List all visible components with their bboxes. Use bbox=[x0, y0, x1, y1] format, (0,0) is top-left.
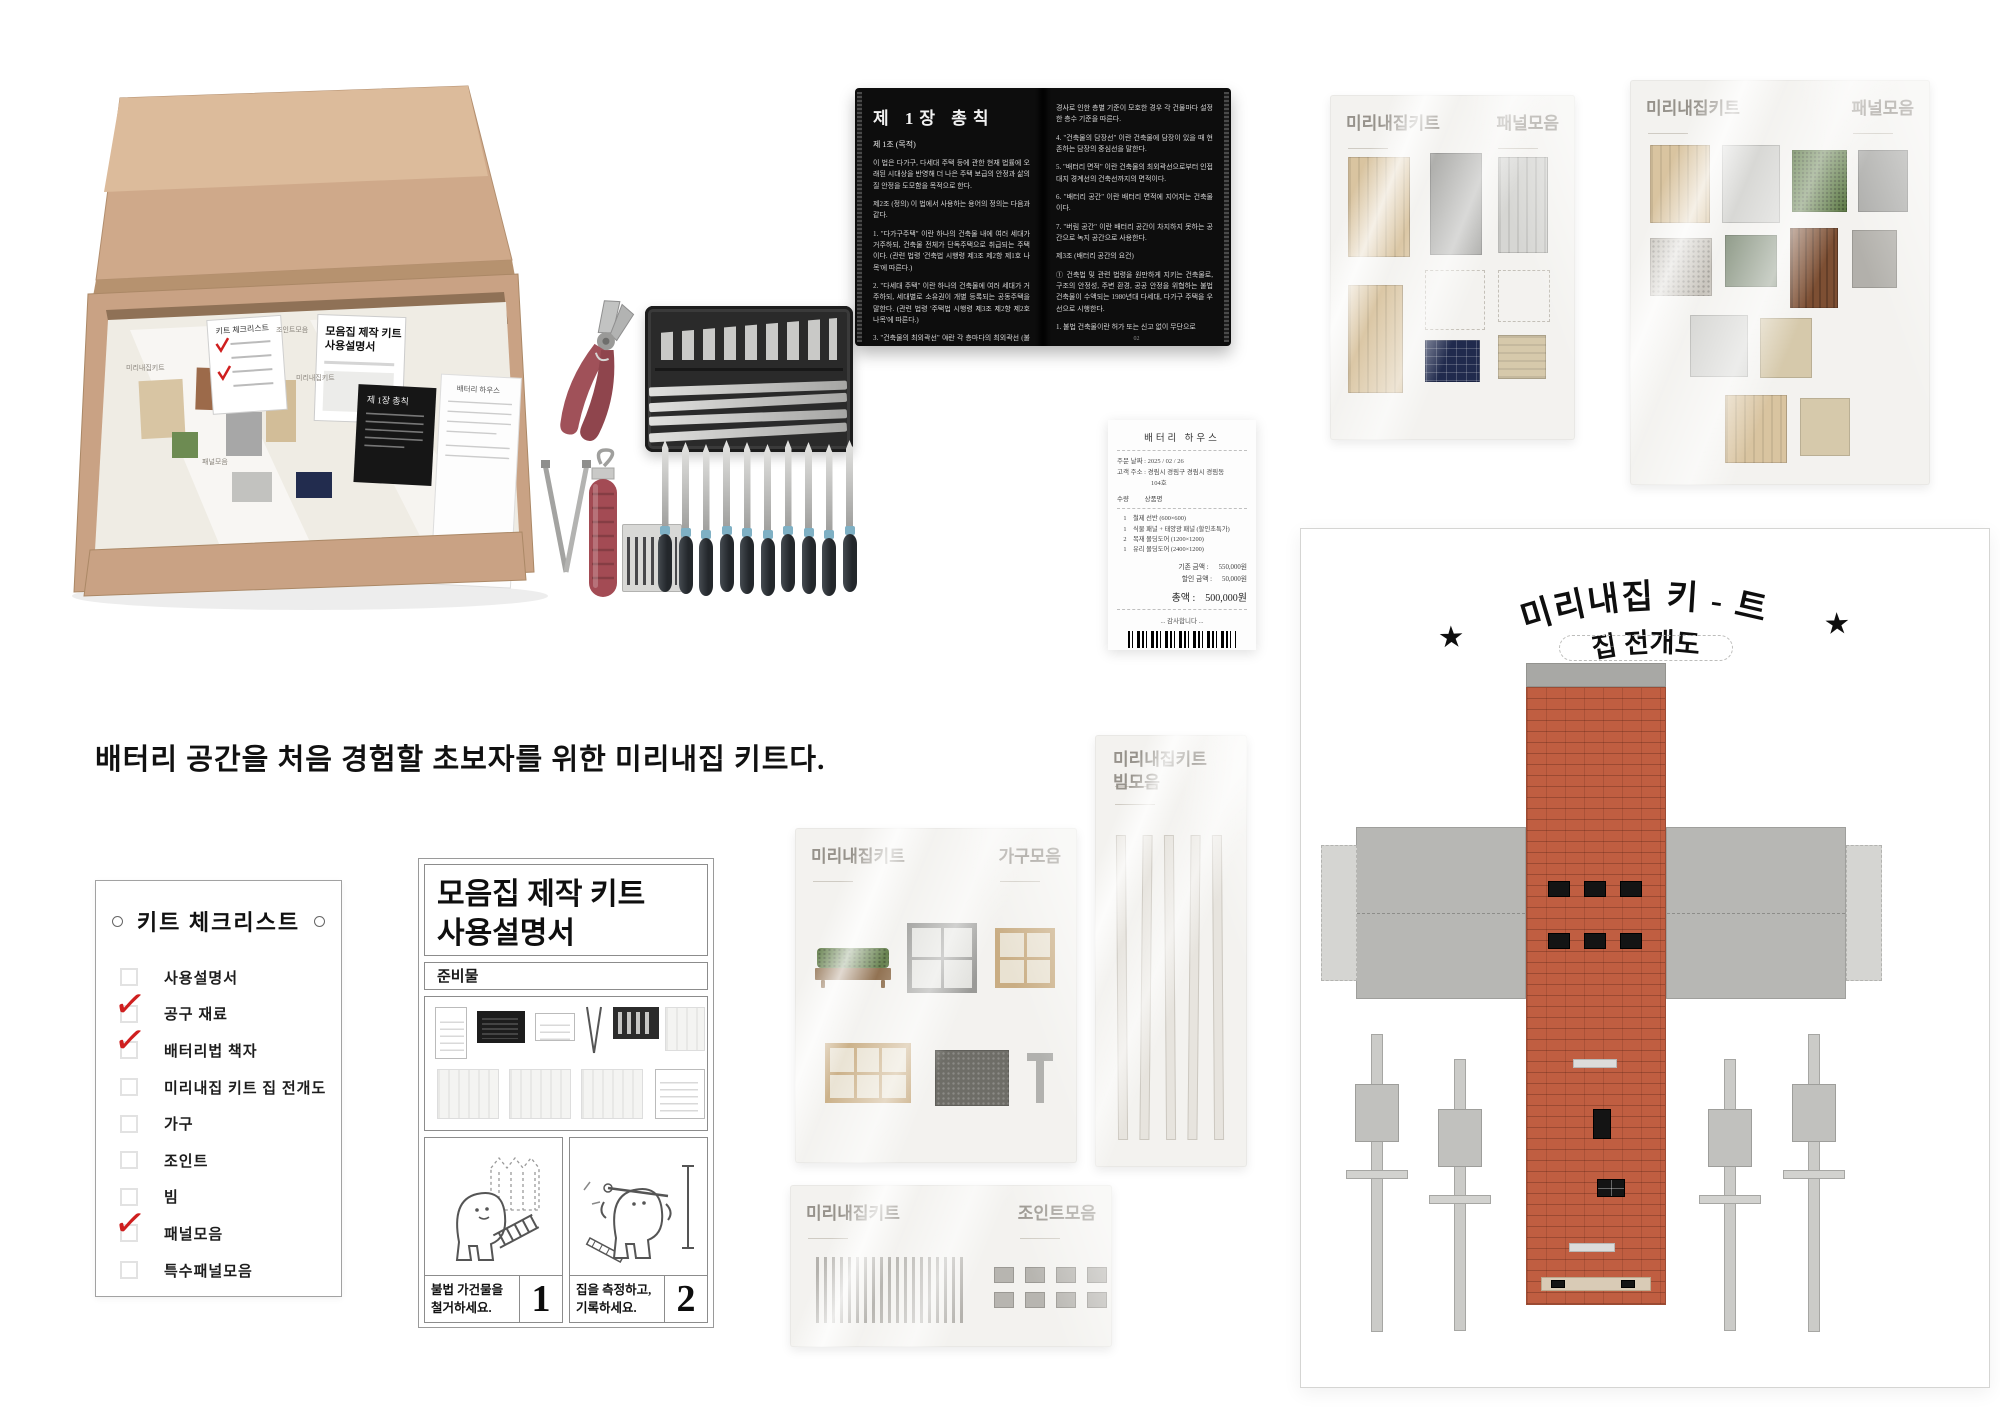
checklist-item-label: 미리내집 키트 집 전개도 bbox=[164, 1077, 326, 1098]
panel-swatch bbox=[1690, 315, 1748, 377]
receipt-item-qty: 1 bbox=[1117, 525, 1133, 535]
checklist-item: 가구 bbox=[96, 1105, 341, 1142]
receipt: 배터리 하우스 주문 날짜 : 2025 / 02 / 26 고객 주소 : 경… bbox=[1108, 420, 1256, 650]
box-mini-panel bbox=[139, 379, 186, 439]
box-mini-book: 제 1장 총칙 bbox=[353, 384, 436, 486]
receipt-address-value: 경림시 경림구 경림시 경림동 bbox=[1148, 469, 1225, 476]
punch-hole-icon bbox=[314, 916, 325, 927]
beam-crossbar bbox=[1346, 1170, 1408, 1179]
file-shaft bbox=[785, 440, 792, 528]
tool-knife-case bbox=[645, 306, 853, 452]
step-2-text: 집을 측정하고, 기록하세요. bbox=[570, 1276, 664, 1322]
file-shaft bbox=[826, 444, 833, 532]
panel-swatch bbox=[1650, 145, 1710, 223]
file-shaft bbox=[682, 442, 689, 530]
checklist-item-label: 배터리법 책자 bbox=[164, 1040, 258, 1061]
panel-swatch bbox=[1725, 235, 1777, 287]
brick-facade-panel bbox=[1526, 687, 1666, 1305]
beam-block bbox=[1792, 1084, 1836, 1142]
thumb-knife-case bbox=[613, 1007, 659, 1039]
wood-panel-swatch bbox=[1790, 228, 1838, 308]
window-cutout bbox=[1620, 881, 1642, 897]
receipt-items: 1철제 선반 (600×600)1식물 패널 + 태양광 패널 (할인초특가)2… bbox=[1117, 514, 1247, 556]
file-handle bbox=[720, 534, 734, 592]
beam-stub bbox=[1724, 1059, 1736, 1111]
beam-crossbar bbox=[1429, 1195, 1491, 1204]
box-mini-panel bbox=[172, 432, 198, 458]
star-icon: ★ bbox=[1439, 622, 1464, 652]
bag-type-label: 패널모음 bbox=[1851, 94, 1914, 119]
beam-crossbar bbox=[1783, 1170, 1845, 1179]
book-paragraph: 6. "배터리 공간" 이란 배터리 면적에 지어지는 건축물이다. bbox=[1056, 192, 1213, 215]
checklist-title: 키트 체크리스트 bbox=[137, 905, 300, 937]
checklist-item-label: 사용설명서 bbox=[164, 967, 238, 988]
manual-section-label: 준비물 bbox=[424, 962, 708, 990]
bag-brand-label: 미리내집키트 bbox=[1113, 749, 1247, 772]
needle-file bbox=[699, 444, 713, 600]
checkbox bbox=[120, 1151, 138, 1169]
panel-swatch bbox=[1498, 157, 1548, 253]
star-icon: ★ bbox=[1825, 609, 1850, 639]
bag-brand-label: 미리내집키트 bbox=[1646, 94, 1740, 119]
receipt-columns: 수량 상품명 bbox=[1117, 493, 1247, 503]
kit-caption: 배터리 공간을 처음 경험할 초보자를 위한 미리내집 키트다. bbox=[95, 736, 855, 778]
needle-file bbox=[843, 440, 857, 596]
thumb-bag-sketch bbox=[509, 1069, 571, 1119]
checklist-card: 키트 체크리스트 사용설명서✓공구 재료✓배터리법 책자미리내집 키트 집 전개… bbox=[95, 880, 342, 1297]
sheet-title: 미리내집 키 - 트 집 전개도 ★ ★ bbox=[1421, 559, 1869, 679]
roof-cap-panel bbox=[1526, 663, 1666, 687]
joint-squares bbox=[994, 1267, 1107, 1308]
bag-beam: 미리내집키트 빔모음 bbox=[1095, 735, 1247, 1167]
book-paragraph: 1. 불법 건축물이란 허가 또는 신고 없이 무단으로 bbox=[1056, 322, 1213, 333]
manual-step-1: 불법 가건물을 철거하세요. 1 bbox=[424, 1137, 563, 1323]
checkbox: ✓ bbox=[120, 1041, 138, 1059]
window-cutout bbox=[1584, 933, 1606, 949]
stone-panel-swatch bbox=[935, 1050, 1009, 1106]
beam-strip bbox=[1187, 835, 1200, 1140]
tool-pliers bbox=[540, 296, 655, 452]
template-beam-piece bbox=[1429, 1059, 1491, 1331]
book-article-title: 제 1조 (목적) bbox=[873, 139, 1030, 150]
checklist-item: 미리내집 키트 집 전개도 bbox=[96, 1069, 341, 1106]
checklist-items: 사용설명서✓공구 재료✓배터리법 책자미리내집 키트 집 전개도가구조인트빔✓패… bbox=[96, 959, 341, 1288]
roof-wing-tab bbox=[1846, 845, 1882, 981]
receipt-item-qty: 1 bbox=[1117, 514, 1133, 524]
beam-block bbox=[1438, 1109, 1482, 1167]
manual-supplies-thumbnails bbox=[424, 996, 708, 1131]
bag-type-label: 패널모음 bbox=[1496, 109, 1559, 134]
mini-planter-base bbox=[815, 968, 891, 980]
stone-panel-swatch bbox=[1650, 238, 1712, 296]
thumb-tweezers bbox=[583, 1005, 605, 1057]
red-checkmark-icon: ✓ bbox=[112, 1202, 149, 1244]
template-beam-piece bbox=[1699, 1059, 1761, 1331]
book-paragraph: 제3조 (배터리 공간의 요건) bbox=[1056, 251, 1213, 262]
joint-square bbox=[1025, 1292, 1045, 1308]
thumb-files bbox=[665, 1007, 705, 1051]
book-page-edge bbox=[857, 92, 862, 342]
receipt-discount-label: 할인 금액 : bbox=[1182, 574, 1212, 586]
bag-joint: 미리내집키트 조인트모음 bbox=[790, 1185, 1112, 1347]
mini-window-gray bbox=[907, 923, 977, 993]
beam-pole bbox=[1454, 1165, 1466, 1331]
joint-sticks bbox=[816, 1257, 966, 1323]
checklist-item-label: 패널모음 bbox=[164, 1223, 223, 1244]
receipt-address-value2: 104호 bbox=[1117, 478, 1247, 489]
step-1-text: 불법 가건물을 철거하세요. bbox=[425, 1276, 519, 1322]
receipt-subtotal-value: 550,000원 bbox=[1219, 562, 1247, 574]
file-handle bbox=[679, 536, 693, 594]
joint-square bbox=[1056, 1292, 1076, 1308]
receipt-item-row: 1식물 패널 + 태양광 패널 (할인초특가) bbox=[1117, 525, 1247, 535]
needle-file bbox=[679, 442, 693, 598]
box-mini-label: 패널모음 bbox=[202, 457, 228, 466]
panel-swatch bbox=[1725, 395, 1787, 463]
bag-type-label: 가구모음 bbox=[998, 842, 1061, 867]
file-shaft bbox=[723, 440, 730, 528]
mini-window-wide bbox=[825, 1043, 911, 1103]
mini-planter-leg bbox=[881, 980, 885, 988]
cut-template-outline bbox=[1498, 270, 1550, 322]
divider bbox=[1117, 508, 1247, 509]
receipt-item-qty: 1 bbox=[1117, 545, 1133, 555]
file-shaft bbox=[662, 440, 669, 528]
knife-case-divider bbox=[655, 368, 843, 371]
thumb-pages bbox=[535, 1013, 575, 1041]
panel-swatch bbox=[1430, 153, 1482, 255]
receipt-date-value: 2025 / 02 / 26 bbox=[1148, 458, 1184, 465]
barcode bbox=[1128, 631, 1236, 648]
window-cutout bbox=[1548, 881, 1570, 897]
book-paragraph: 1. "다가구주택" 이란 하나의 건축물 내에 여러 세대가 거주하되, 건축… bbox=[873, 229, 1030, 274]
box-mini-label: 미리내집키트 bbox=[126, 363, 165, 372]
book-left-page: 제 1장 총칙 제 1조 (목적) 이 법은 다가구, 다세대 주택 등에 관한… bbox=[855, 88, 1042, 346]
receipt-item-name: 목재 몰딩도어 (1200×1200) bbox=[1133, 535, 1247, 545]
receipt-qty-header: 수량 bbox=[1117, 496, 1129, 503]
book-paragraph: 7. "버림 공간" 이란 배터리 공간이 차지하지 못하는 공간으로 녹지 공… bbox=[1056, 222, 1213, 245]
window-cutout bbox=[1584, 881, 1606, 897]
beam-block bbox=[1355, 1084, 1399, 1142]
tool-deburring-pick bbox=[580, 448, 626, 604]
book-paragraph: ① 건축법 및 관련 법령을 원만하게 지키는 건축물로, 구조의 안정성, 주… bbox=[1056, 270, 1213, 315]
file-handle bbox=[699, 538, 713, 596]
roof-wing-right bbox=[1666, 827, 1846, 999]
file-shaft bbox=[846, 440, 853, 528]
beam-crossbar bbox=[1699, 1195, 1761, 1204]
checklist-item: 조인트 bbox=[96, 1142, 341, 1179]
bag-panel-b: 미리내집키트 패널모음 bbox=[1630, 80, 1930, 485]
manual-step-2: 집을 측정하고, 기록하세요. 2 bbox=[569, 1137, 708, 1323]
beam-pole bbox=[1724, 1165, 1736, 1331]
house-template-sheet: 미리내집 키 - 트 집 전개도 ★ ★ bbox=[1300, 528, 1990, 1388]
panel-swatch bbox=[1348, 157, 1410, 257]
checklist-item-label: 특수패널모음 bbox=[164, 1260, 253, 1281]
checkbox bbox=[120, 1261, 138, 1279]
beam-pole bbox=[1808, 1140, 1820, 1332]
panel-swatch bbox=[1722, 145, 1780, 223]
needle-file bbox=[740, 442, 754, 598]
receipt-item-name: 식물 패널 + 태양광 패널 (할인초특가) bbox=[1133, 525, 1247, 535]
joint-square bbox=[1087, 1292, 1107, 1308]
thumb-checklist bbox=[435, 1007, 467, 1059]
box-mini-solar-panel bbox=[296, 472, 332, 498]
receipt-subtotal-label: 기존 금액 : bbox=[1178, 562, 1208, 574]
file-handle bbox=[761, 538, 775, 596]
roof-wing-left bbox=[1356, 827, 1526, 999]
file-shaft bbox=[764, 444, 771, 532]
manual-title-box: 모음집 제작 키트 사용설명서 bbox=[424, 864, 708, 956]
receipt-thanks: ... 감사합니다 ... bbox=[1117, 615, 1247, 625]
book-page-number: 01 bbox=[855, 336, 1042, 342]
needle-file bbox=[720, 440, 734, 596]
beam-strip bbox=[1139, 835, 1152, 1140]
receipt-item-qty: 2 bbox=[1117, 535, 1133, 545]
receipt-total-value: 500,000원 bbox=[1205, 589, 1247, 604]
file-handle bbox=[802, 536, 816, 594]
kit-box-photo: 키트 체크리스트 모음집 제작 키트 사용설명서 제 1장 총칙 배터리 하우스 bbox=[60, 80, 580, 620]
receipt-item-row: 1철제 선반 (600×600) bbox=[1117, 514, 1247, 524]
joint-square bbox=[994, 1292, 1014, 1308]
mini-planter-leg bbox=[821, 980, 825, 988]
window-cutout bbox=[1621, 1280, 1635, 1288]
checkbox-square bbox=[120, 1261, 138, 1279]
file-shaft bbox=[703, 444, 710, 532]
needle-file bbox=[761, 444, 775, 600]
file-handle bbox=[740, 536, 754, 594]
checkbox bbox=[120, 1078, 138, 1096]
step-1-number: 1 bbox=[519, 1276, 562, 1322]
checklist-item: 특수패널모음 bbox=[96, 1252, 341, 1289]
checklist-item-label: 공구 재료 bbox=[164, 1003, 228, 1024]
thumb-bag-sketch bbox=[437, 1069, 499, 1119]
checklist-item: ✓패널모음 bbox=[96, 1215, 341, 1252]
bag-panel-a: 미리내집키트 패널모음 bbox=[1330, 95, 1575, 440]
step-2-number: 2 bbox=[664, 1276, 707, 1322]
mini-planter-plants bbox=[817, 948, 889, 968]
thumb-template-sheet bbox=[655, 1069, 705, 1119]
window-sill bbox=[1573, 1059, 1617, 1068]
book-paragraph: 5. "배터리 면적" 이란 건축물의 최외곽선으로부터 인접 대지 경계선의 … bbox=[1056, 162, 1213, 185]
checkbox-square bbox=[120, 1151, 138, 1169]
checkbox bbox=[120, 1115, 138, 1133]
receipt-total-label: 총액 : bbox=[1172, 589, 1196, 604]
receipt-item-row: 2목재 몰딩도어 (1200×1200) bbox=[1117, 535, 1247, 545]
receipt-date-label: 주문 날짜 : bbox=[1117, 458, 1146, 465]
needle-file bbox=[781, 440, 795, 596]
book-right-paragraphs: 경사로 인한 층별 기준이 모호한 경우 각 건물마다 설정한 층수 기준을 따… bbox=[1056, 103, 1213, 333]
book-left-paragraphs: 이 법은 다가구, 다세대 주택 등에 관한 현재 법률에 오래된 시대상을 반… bbox=[873, 158, 1030, 346]
checklist-item-label: 가구 bbox=[164, 1113, 194, 1134]
book-paragraph: 경사로 인한 층별 기준이 모호한 경우 각 건물마다 설정한 층수 기준을 따… bbox=[1056, 103, 1213, 126]
needle-file bbox=[822, 444, 836, 600]
window-cutout bbox=[1620, 933, 1642, 949]
window-cutout bbox=[1597, 1179, 1625, 1197]
receipt-item-name: 유리 몰딩도어 (2400×1200) bbox=[1133, 545, 1247, 555]
book-paragraph: 이 법은 다가구, 다세대 주택 등에 관한 현재 법률에 오래된 시대상을 반… bbox=[873, 158, 1030, 192]
box-mini-label: 조인트모음 bbox=[276, 325, 309, 334]
book-chapter-title: 제 1장 총칙 bbox=[873, 104, 1030, 129]
box-mini-panel bbox=[226, 412, 262, 456]
thumb-bag-sketch bbox=[581, 1069, 643, 1119]
manual-card: 모음집 제작 키트 사용설명서 준비물 bbox=[418, 858, 714, 1328]
receipt-meta: 주문 날짜 : 2025 / 02 / 26 고객 주소 : 경림시 경림구 경… bbox=[1117, 456, 1247, 489]
panel-swatch bbox=[1852, 230, 1897, 288]
manual-title-line1: 모음집 제작 키트 bbox=[437, 875, 695, 914]
plastic-sheen bbox=[795, 828, 1077, 1163]
beam-strip bbox=[1116, 835, 1128, 1140]
template-beam-piece bbox=[1783, 1034, 1845, 1332]
checklist-item-label: 조인트 bbox=[164, 1150, 208, 1171]
needle-file bbox=[802, 442, 816, 598]
solar-panel-swatch bbox=[1425, 340, 1480, 382]
panel-swatch bbox=[1858, 150, 1908, 212]
file-handle bbox=[843, 534, 857, 592]
bag-furniture: 미리내집키트 가구모음 bbox=[795, 828, 1077, 1163]
joint-square bbox=[1025, 1267, 1045, 1283]
panel-swatch bbox=[1348, 285, 1403, 393]
receipt-discount-value: 50,000원 bbox=[1222, 574, 1247, 586]
receipt-store-name: 배터리 하우스 bbox=[1117, 430, 1247, 444]
checkbox: ✓ bbox=[120, 1224, 138, 1242]
beam-pole bbox=[1371, 1140, 1383, 1332]
panel-swatch bbox=[1760, 318, 1812, 378]
book-paragraph: 제2조 (정의) 이 법에서 사용하는 용어의 정의는 다음과 같다. bbox=[873, 199, 1030, 222]
joint-square bbox=[1087, 1267, 1107, 1283]
beam-strip bbox=[1164, 835, 1176, 1140]
checkbox-square bbox=[120, 1115, 138, 1133]
receipt-address-label: 고객 주소 : bbox=[1117, 469, 1146, 476]
window-cutout bbox=[1551, 1280, 1565, 1288]
window-cutout bbox=[1548, 933, 1570, 949]
window-sill bbox=[1569, 1243, 1615, 1252]
panel-swatch bbox=[1800, 398, 1850, 456]
step-2-illustration bbox=[570, 1138, 707, 1275]
punch-hole-icon bbox=[112, 916, 123, 927]
book-paragraph: 2. "다세대 주택" 이란 하나의 건축물에 여러 세대가 거주하되, 세대별… bbox=[873, 281, 1030, 326]
metal-file-strip bbox=[649, 393, 847, 412]
book-page-edge bbox=[1224, 92, 1229, 342]
receipt-item-header: 상품명 bbox=[1145, 496, 1163, 503]
bag-brand-label: 미리내집키트 bbox=[1346, 109, 1440, 134]
book-page-number: 02 bbox=[1042, 336, 1231, 342]
book-paragraph: 4. "건축물의 담장선" 이란 건축물에 담장이 있을 때 현존하는 담장의 … bbox=[1056, 133, 1213, 156]
file-shaft bbox=[744, 442, 751, 530]
battery-law-book: 제 1장 총칙 제 1조 (목적) 이 법은 다가구, 다세대 주택 등에 관한… bbox=[855, 88, 1231, 346]
needle-file bbox=[658, 440, 672, 596]
beam-stub bbox=[1808, 1034, 1820, 1086]
mini-window-beige bbox=[995, 928, 1055, 988]
bag-type-label: 조인트모음 bbox=[1018, 1199, 1096, 1224]
manual-title-line2: 사용설명서 bbox=[437, 914, 695, 953]
bag-type-label: 빔모음 bbox=[1113, 772, 1247, 795]
mini-stand bbox=[1036, 1061, 1044, 1103]
checklist-item-label: 빔 bbox=[164, 1186, 179, 1207]
beam-block bbox=[1708, 1109, 1752, 1167]
beam-strip bbox=[1212, 835, 1224, 1140]
roof-wing-tab bbox=[1321, 845, 1357, 981]
kit-presentation-canvas: 키트 체크리스트 모음집 제작 키트 사용설명서 제 1장 총칙 배터리 하우스 bbox=[0, 0, 2000, 1414]
glue-tab-outline bbox=[1559, 635, 1733, 661]
beam-stub bbox=[1454, 1059, 1466, 1111]
knife-blades-row bbox=[661, 318, 837, 360]
file-shaft bbox=[805, 442, 812, 530]
checkbox-square bbox=[120, 1078, 138, 1096]
receipt-item-row: 1유리 몰딩도어 (2400×1200) bbox=[1117, 545, 1247, 555]
panel-swatch bbox=[1498, 335, 1546, 379]
thumb-book bbox=[477, 1011, 525, 1043]
checklist-item: ✓배터리법 책자 bbox=[96, 1032, 341, 1069]
file-handle bbox=[658, 534, 672, 592]
red-checkmark-icon: ✓ bbox=[112, 1019, 149, 1061]
template-beam-piece bbox=[1346, 1034, 1408, 1332]
step-1-illustration bbox=[425, 1138, 562, 1275]
bag-brand-label: 미리내집키트 bbox=[811, 842, 905, 867]
joint-square bbox=[994, 1267, 1014, 1283]
beam-stub bbox=[1371, 1034, 1383, 1086]
bag-brand-label: 미리내집키트 bbox=[806, 1199, 900, 1224]
needle-files-row bbox=[658, 442, 857, 598]
door-cutout bbox=[1593, 1109, 1611, 1139]
box-mini-label: 미리내집키트 bbox=[296, 373, 335, 382]
metal-file-strip bbox=[649, 422, 847, 442]
file-handle bbox=[781, 534, 795, 592]
divider bbox=[1117, 609, 1247, 610]
mini-stand bbox=[1027, 1053, 1053, 1061]
cut-template-outline bbox=[1425, 270, 1485, 330]
file-handle bbox=[822, 538, 836, 596]
box-mini-panel bbox=[232, 472, 272, 502]
grass-panel-swatch bbox=[1792, 150, 1847, 212]
divider bbox=[1117, 450, 1247, 451]
receipt-item-name: 철제 선반 (600×600) bbox=[1133, 514, 1247, 524]
book-right-page: 경사로 인한 층별 기준이 모호한 경우 각 건물마다 설정한 층수 기준을 따… bbox=[1042, 88, 1231, 346]
joint-square bbox=[1056, 1267, 1076, 1283]
